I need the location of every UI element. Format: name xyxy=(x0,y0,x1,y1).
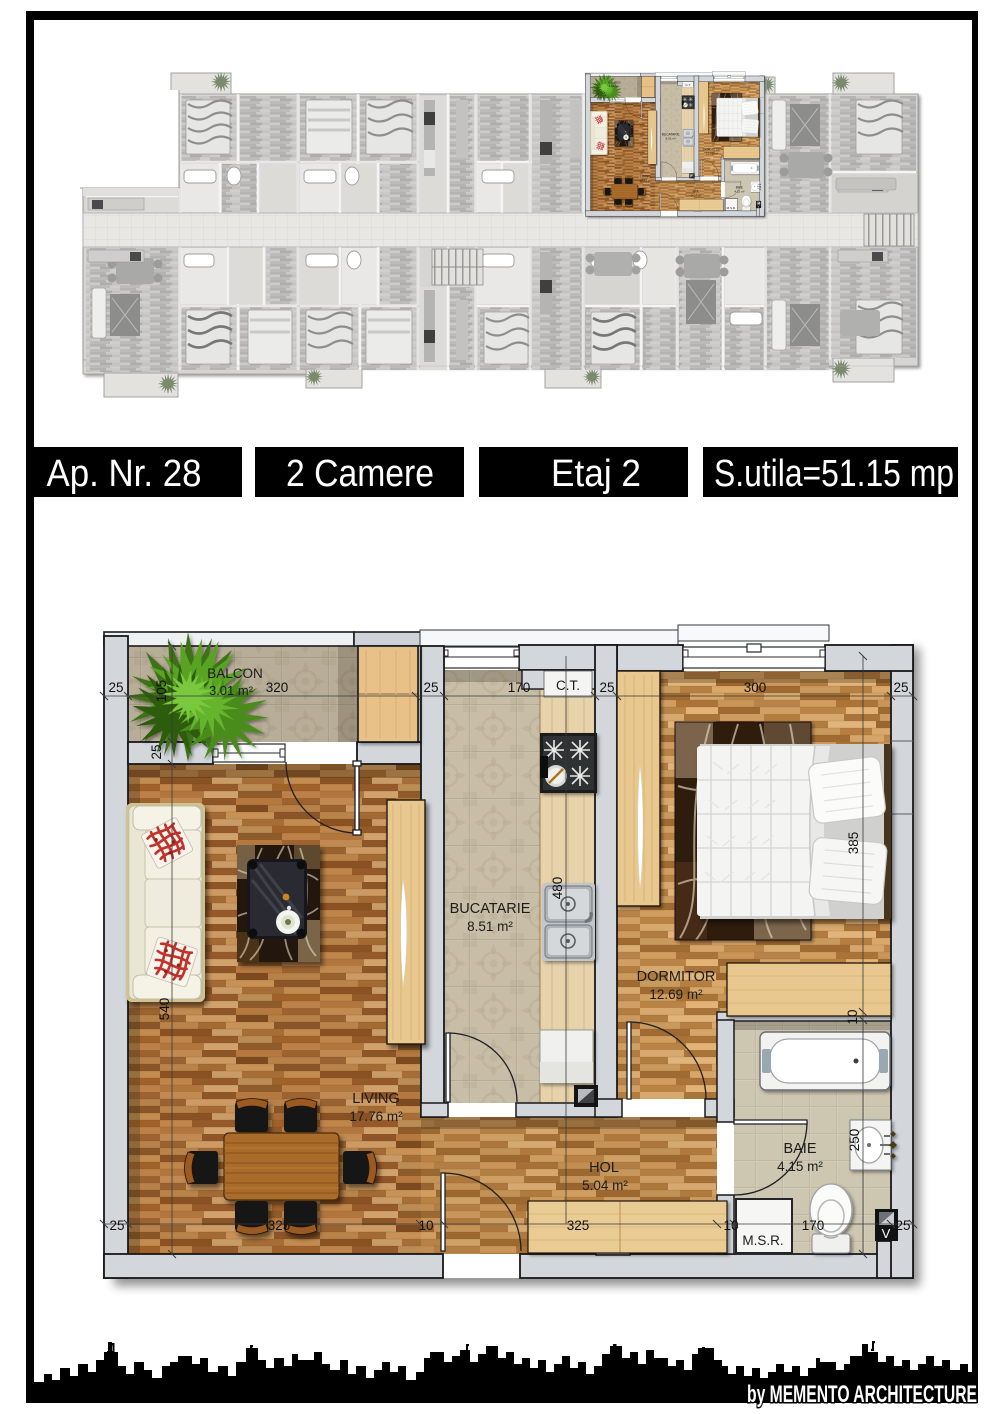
svg-text:25: 25 xyxy=(423,680,438,695)
svg-text:540: 540 xyxy=(157,998,172,1021)
svg-text:25: 25 xyxy=(108,680,123,695)
svg-text:S.utila=51.15 mp: S.utila=51.15 mp xyxy=(714,453,954,495)
svg-text:Ap. Nr. 28: Ap. Nr. 28 xyxy=(47,453,202,495)
svg-text:170: 170 xyxy=(508,680,531,695)
svg-text:300: 300 xyxy=(744,680,767,695)
svg-text:10: 10 xyxy=(845,1009,860,1024)
svg-text:10: 10 xyxy=(418,1218,433,1233)
svg-text:325: 325 xyxy=(567,1218,590,1233)
svg-text:385: 385 xyxy=(846,832,861,855)
svg-text:10: 10 xyxy=(723,1218,738,1233)
svg-text:170: 170 xyxy=(802,1218,825,1233)
svg-text:250: 250 xyxy=(847,1129,862,1152)
svg-text:25: 25 xyxy=(109,1218,124,1233)
svg-text:by MEMENTO ARCHITECTURE: by MEMENTO ARCHITECTURE xyxy=(747,1381,977,1408)
svg-text:320: 320 xyxy=(266,680,289,695)
svg-text:25: 25 xyxy=(599,680,614,695)
svg-text:325: 325 xyxy=(268,1218,291,1233)
svg-text:2 Camere: 2 Camere xyxy=(286,453,434,495)
svg-text:105: 105 xyxy=(154,680,169,703)
svg-text:480: 480 xyxy=(550,877,565,900)
svg-text:25: 25 xyxy=(893,680,908,695)
svg-text:25: 25 xyxy=(895,1218,910,1233)
svg-text:25: 25 xyxy=(149,744,164,759)
svg-text:Etaj 2: Etaj 2 xyxy=(551,453,641,495)
